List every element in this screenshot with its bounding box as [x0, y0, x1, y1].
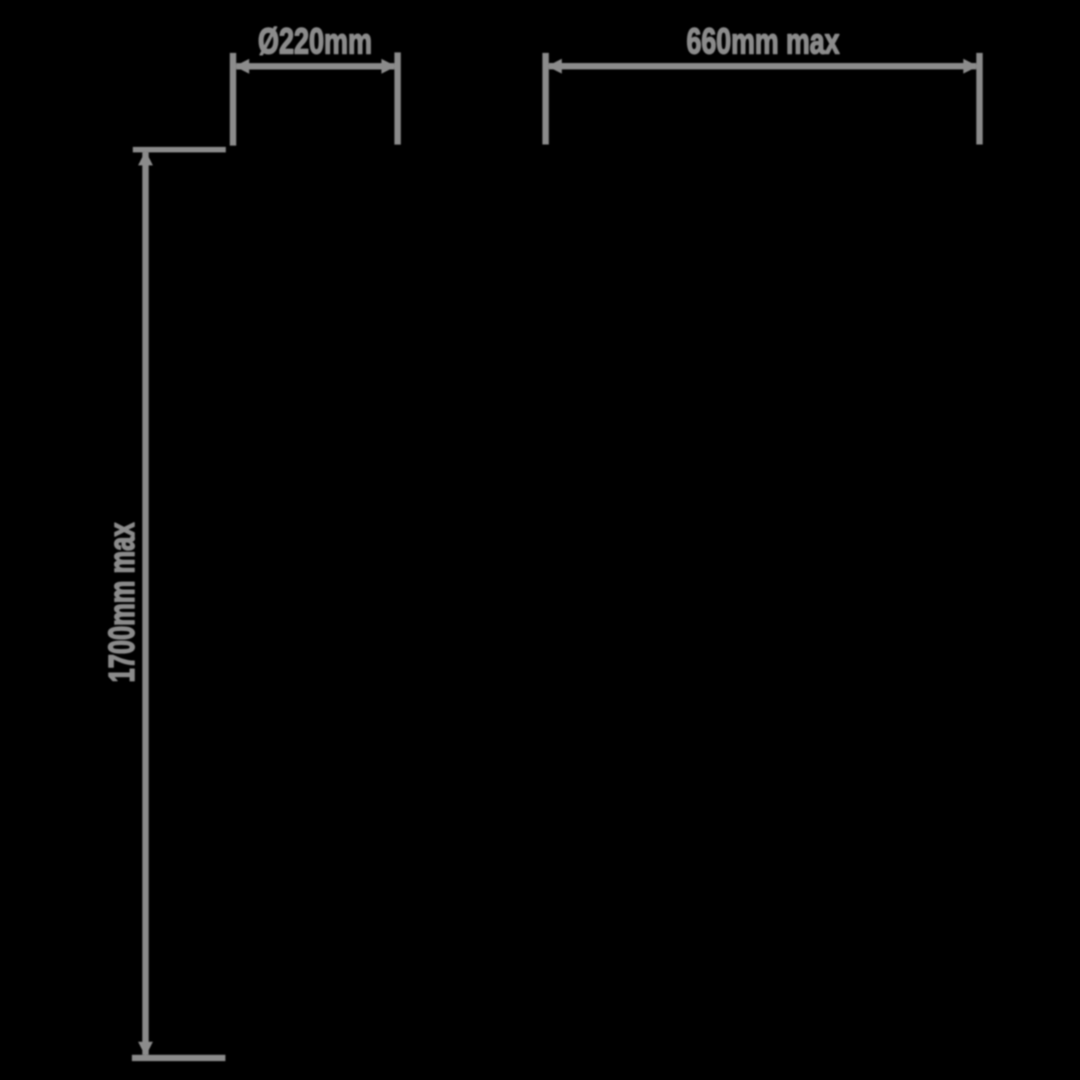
- svg-text:Ø220mm: Ø220mm: [258, 21, 372, 62]
- svg-text:660mm max: 660mm max: [687, 21, 840, 62]
- svg-text:1700mm max: 1700mm max: [101, 523, 142, 683]
